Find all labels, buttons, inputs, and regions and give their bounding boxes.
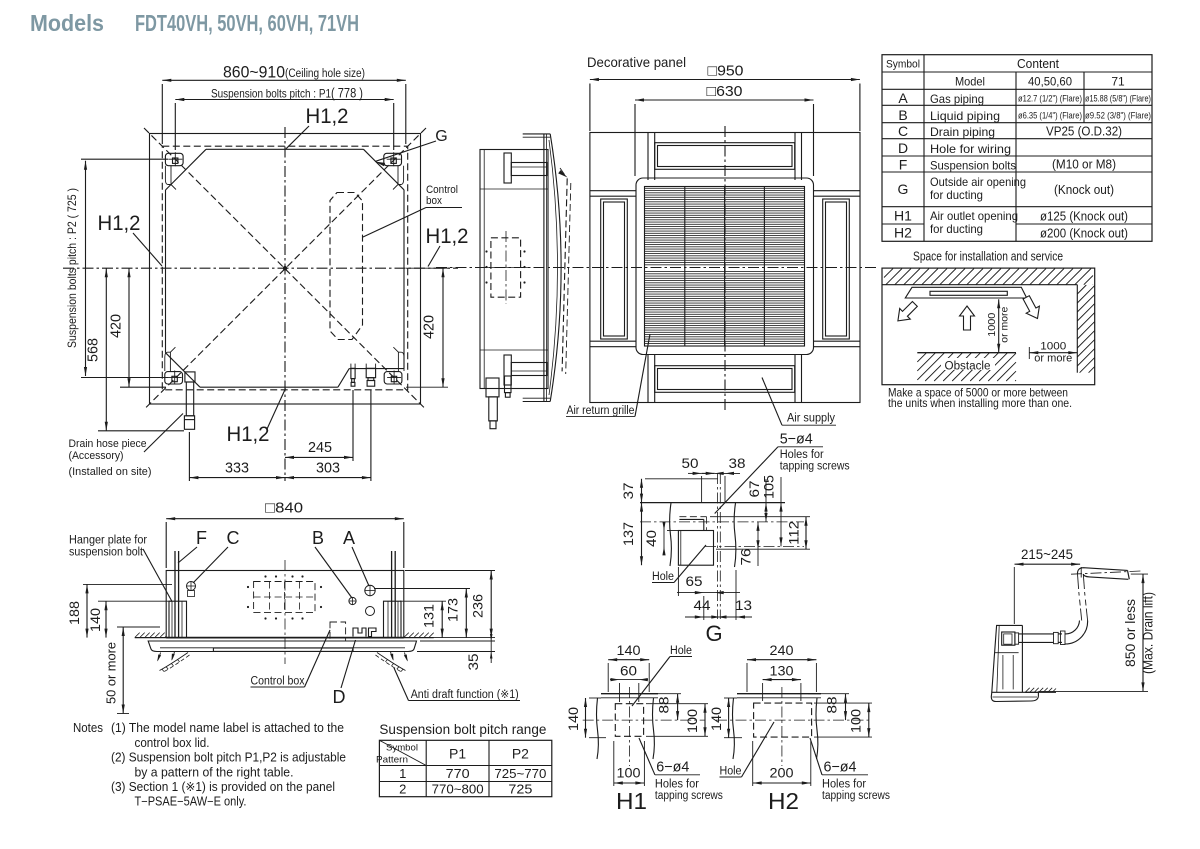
svg-text:50 or more: 50 or more <box>104 642 119 704</box>
svg-text:Hole for wiring: Hole for wiring <box>930 142 1011 156</box>
svg-text:100: 100 <box>848 709 864 733</box>
svg-text:for ducting: for ducting <box>930 188 983 202</box>
svg-text:65: 65 <box>686 573 703 589</box>
svg-text:245: 245 <box>308 439 332 456</box>
svg-text:Space for installation and ser: Space for installation and service <box>913 250 1063 264</box>
svg-text:850 or less: 850 or less <box>1123 599 1138 667</box>
svg-text:215~245: 215~245 <box>1021 547 1073 562</box>
svg-text:131: 131 <box>421 604 437 628</box>
svg-text:Drain piping: Drain piping <box>930 125 995 139</box>
svg-text:(Ceiling hole size): (Ceiling hole size) <box>285 68 365 80</box>
svg-text:P1: P1 <box>449 746 466 762</box>
svg-text:35: 35 <box>465 653 481 670</box>
svg-text:ø9.52 (3/8ʺ) (Flare): ø9.52 (3/8ʺ) (Flare) <box>1085 111 1151 121</box>
svg-text:ø12.7 (1/2ʺ) (Flare): ø12.7 (1/2ʺ) (Flare) <box>1018 94 1082 104</box>
svg-text:F: F <box>196 528 207 548</box>
svg-text:2: 2 <box>399 782 406 797</box>
svg-text:Gas piping: Gas piping <box>930 92 984 106</box>
svg-text:H2: H2 <box>768 788 799 814</box>
svg-text:H1,2: H1,2 <box>306 105 349 128</box>
svg-text:(2) Suspension bolt pitch P1,P: (2) Suspension bolt pitch P1,P2 is adjus… <box>111 751 346 765</box>
svg-text:T−PSAE−5AW−E only.: T−PSAE−5AW−E only. <box>135 795 247 809</box>
svg-text:Suspension bolts pitch : P2 (: Suspension bolts pitch : P2 ( 725 ) <box>65 188 79 348</box>
svg-text:FDT40VH, 50VH, 60VH, 71VH: FDT40VH, 50VH, 60VH, 71VH <box>135 10 359 36</box>
svg-text:(1) The model name label is at: (1) The model name label is attached to … <box>111 721 344 735</box>
svg-text:88: 88 <box>656 696 672 713</box>
svg-text:Hole: Hole <box>652 571 674 583</box>
svg-text:(Knock out): (Knock out) <box>1054 183 1114 197</box>
svg-text:Anti draft function (※1): Anti draft function (※1) <box>411 689 519 701</box>
svg-text:76: 76 <box>738 548 754 565</box>
svg-text:5−ø4: 5−ø4 <box>780 431 813 448</box>
svg-text:or more: or more <box>999 307 1011 343</box>
svg-text:Control box: Control box <box>251 676 305 688</box>
svg-text:□950: □950 <box>708 63 744 80</box>
svg-text:1: 1 <box>399 766 406 781</box>
svg-text:140: 140 <box>708 707 724 731</box>
svg-text:6−ø4: 6−ø4 <box>824 759 857 776</box>
svg-text:□840: □840 <box>265 500 303 517</box>
svg-text:88: 88 <box>824 696 840 713</box>
svg-text:236: 236 <box>470 594 486 618</box>
svg-text:(Max. Drain lift): (Max. Drain lift) <box>1141 592 1156 674</box>
svg-text:188: 188 <box>66 601 82 625</box>
svg-text:173: 173 <box>445 598 461 622</box>
svg-text:ø6.35 (1/4ʺ) (Flare): ø6.35 (1/4ʺ) (Flare) <box>1018 111 1082 121</box>
svg-text:40,50,60: 40,50,60 <box>1028 75 1072 89</box>
svg-text:( 778 ): ( 778 ) <box>331 85 363 101</box>
svg-text:box: box <box>426 195 442 207</box>
svg-text:the units when installing more: the units when installing more than one. <box>888 396 1072 410</box>
svg-text:tapping screws: tapping screws <box>655 790 723 802</box>
svg-text:420: 420 <box>108 314 125 338</box>
svg-text:50: 50 <box>682 455 699 471</box>
svg-text:□630: □630 <box>707 83 743 100</box>
svg-text:333: 333 <box>225 460 249 477</box>
svg-text:105: 105 <box>761 475 777 499</box>
svg-text:568: 568 <box>85 338 102 362</box>
svg-text:G: G <box>898 181 909 197</box>
svg-text:200: 200 <box>770 765 794 781</box>
svg-text:ø125 (Knock out): ø125 (Knock out) <box>1040 210 1128 224</box>
svg-text:H1,2: H1,2 <box>227 423 270 446</box>
svg-text:240: 240 <box>770 642 794 658</box>
svg-text:(Installed on site): (Installed on site) <box>69 466 152 478</box>
svg-text:B: B <box>898 107 907 123</box>
svg-text:Notes: Notes <box>73 721 103 735</box>
svg-text:by a pattern of the right tabl: by a pattern of the right table. <box>135 766 294 780</box>
svg-text:A: A <box>898 90 908 106</box>
svg-text:H1: H1 <box>616 788 647 814</box>
svg-text:Suspension bolts: Suspension bolts <box>930 159 1016 173</box>
svg-text:Suspension bolts pitch : P1: Suspension bolts pitch : P1 <box>211 87 331 101</box>
svg-text:H1,2: H1,2 <box>426 225 469 248</box>
svg-text:Symbol: Symbol <box>386 743 418 754</box>
svg-text:suspension bolt: suspension bolt <box>69 547 144 559</box>
svg-text:Holes for: Holes for <box>780 449 824 461</box>
svg-text:P2: P2 <box>512 746 529 762</box>
svg-text:40: 40 <box>643 530 659 547</box>
svg-text:Model: Model <box>955 75 985 89</box>
svg-text:(Accessory): (Accessory) <box>69 450 124 462</box>
svg-text:tapping screws: tapping screws <box>780 461 850 473</box>
svg-text:140: 140 <box>565 707 581 731</box>
svg-text:Models: Models <box>30 10 104 36</box>
svg-text:137: 137 <box>620 522 636 546</box>
svg-text:or more: or more <box>1034 353 1072 365</box>
svg-text:Drain hose piece: Drain hose piece <box>69 438 147 450</box>
svg-text:Holes for: Holes for <box>822 779 866 791</box>
svg-text:100: 100 <box>617 765 641 781</box>
svg-text:Air outlet opening: Air outlet opening <box>930 209 1018 223</box>
svg-text:1000: 1000 <box>1040 341 1066 353</box>
svg-text:44: 44 <box>694 597 711 613</box>
svg-text:140: 140 <box>87 608 103 632</box>
svg-text:Symbol: Symbol <box>886 59 920 71</box>
svg-text:D: D <box>333 687 346 707</box>
svg-text:60: 60 <box>620 663 637 679</box>
svg-text:37: 37 <box>620 482 636 499</box>
svg-text:Holes for: Holes for <box>655 779 699 791</box>
svg-text:420: 420 <box>421 315 438 339</box>
svg-text:Air supply: Air supply <box>787 413 835 425</box>
svg-text:H1: H1 <box>894 208 912 224</box>
svg-text:303: 303 <box>316 460 340 477</box>
svg-text:H2: H2 <box>894 225 912 241</box>
svg-text:112: 112 <box>786 521 802 545</box>
svg-text:Hole: Hole <box>670 645 692 657</box>
svg-text:VP25 (O.D.32): VP25 (O.D.32) <box>1046 125 1122 139</box>
svg-text:130: 130 <box>770 663 794 679</box>
svg-text:725~770: 725~770 <box>494 766 546 781</box>
svg-text:B: B <box>312 528 324 548</box>
svg-text:ø15.88 (5/8ʺ) (Flare): ø15.88 (5/8ʺ) (Flare) <box>1085 94 1151 104</box>
svg-text:C: C <box>227 528 240 548</box>
svg-text:Hanger plate for: Hanger plate for <box>69 535 147 547</box>
svg-text:Suspension bolt pitch range: Suspension bolt pitch range <box>379 721 546 737</box>
svg-text:C: C <box>898 123 908 139</box>
svg-text:6−ø4: 6−ø4 <box>656 759 689 776</box>
svg-text:770~800: 770~800 <box>432 782 484 797</box>
svg-text:G: G <box>705 621 722 646</box>
svg-text:Content: Content <box>1017 57 1060 71</box>
svg-text:71: 71 <box>1111 75 1125 89</box>
svg-text:Liquid piping: Liquid piping <box>930 109 1000 123</box>
svg-text:Pattern: Pattern <box>376 755 408 766</box>
svg-text:(M10 or M8): (M10 or M8) <box>1052 158 1116 172</box>
svg-text:D: D <box>898 140 908 156</box>
svg-text:F: F <box>899 157 908 173</box>
svg-text:H1,2: H1,2 <box>98 212 141 235</box>
svg-text:Outside air opening: Outside air opening <box>930 175 1026 189</box>
svg-text:Air return grille: Air return grille <box>567 405 635 417</box>
svg-text:Hole: Hole <box>720 766 742 778</box>
svg-text:770: 770 <box>446 766 470 781</box>
svg-text:Obstacle: Obstacle <box>945 361 991 373</box>
svg-text:(3) Section 1 (※1) is provided: (3) Section 1 (※1) is provided on the pa… <box>111 780 335 794</box>
svg-text:control box lid.: control box lid. <box>135 736 210 750</box>
svg-text:100: 100 <box>684 709 700 733</box>
svg-text:860~910: 860~910 <box>223 63 285 82</box>
svg-text:38: 38 <box>729 455 746 471</box>
svg-text:1000: 1000 <box>986 313 998 337</box>
svg-text:for ducting: for ducting <box>930 222 983 236</box>
svg-text:tapping screws: tapping screws <box>822 790 890 802</box>
svg-text:G: G <box>435 128 447 145</box>
svg-text:140: 140 <box>617 642 641 658</box>
svg-text:ø200 (Knock out): ø200 (Knock out) <box>1040 227 1128 241</box>
svg-text:A: A <box>343 528 355 548</box>
svg-text:13: 13 <box>735 597 752 613</box>
svg-text:Decorative panel: Decorative panel <box>587 54 686 70</box>
svg-text:725: 725 <box>508 782 532 797</box>
